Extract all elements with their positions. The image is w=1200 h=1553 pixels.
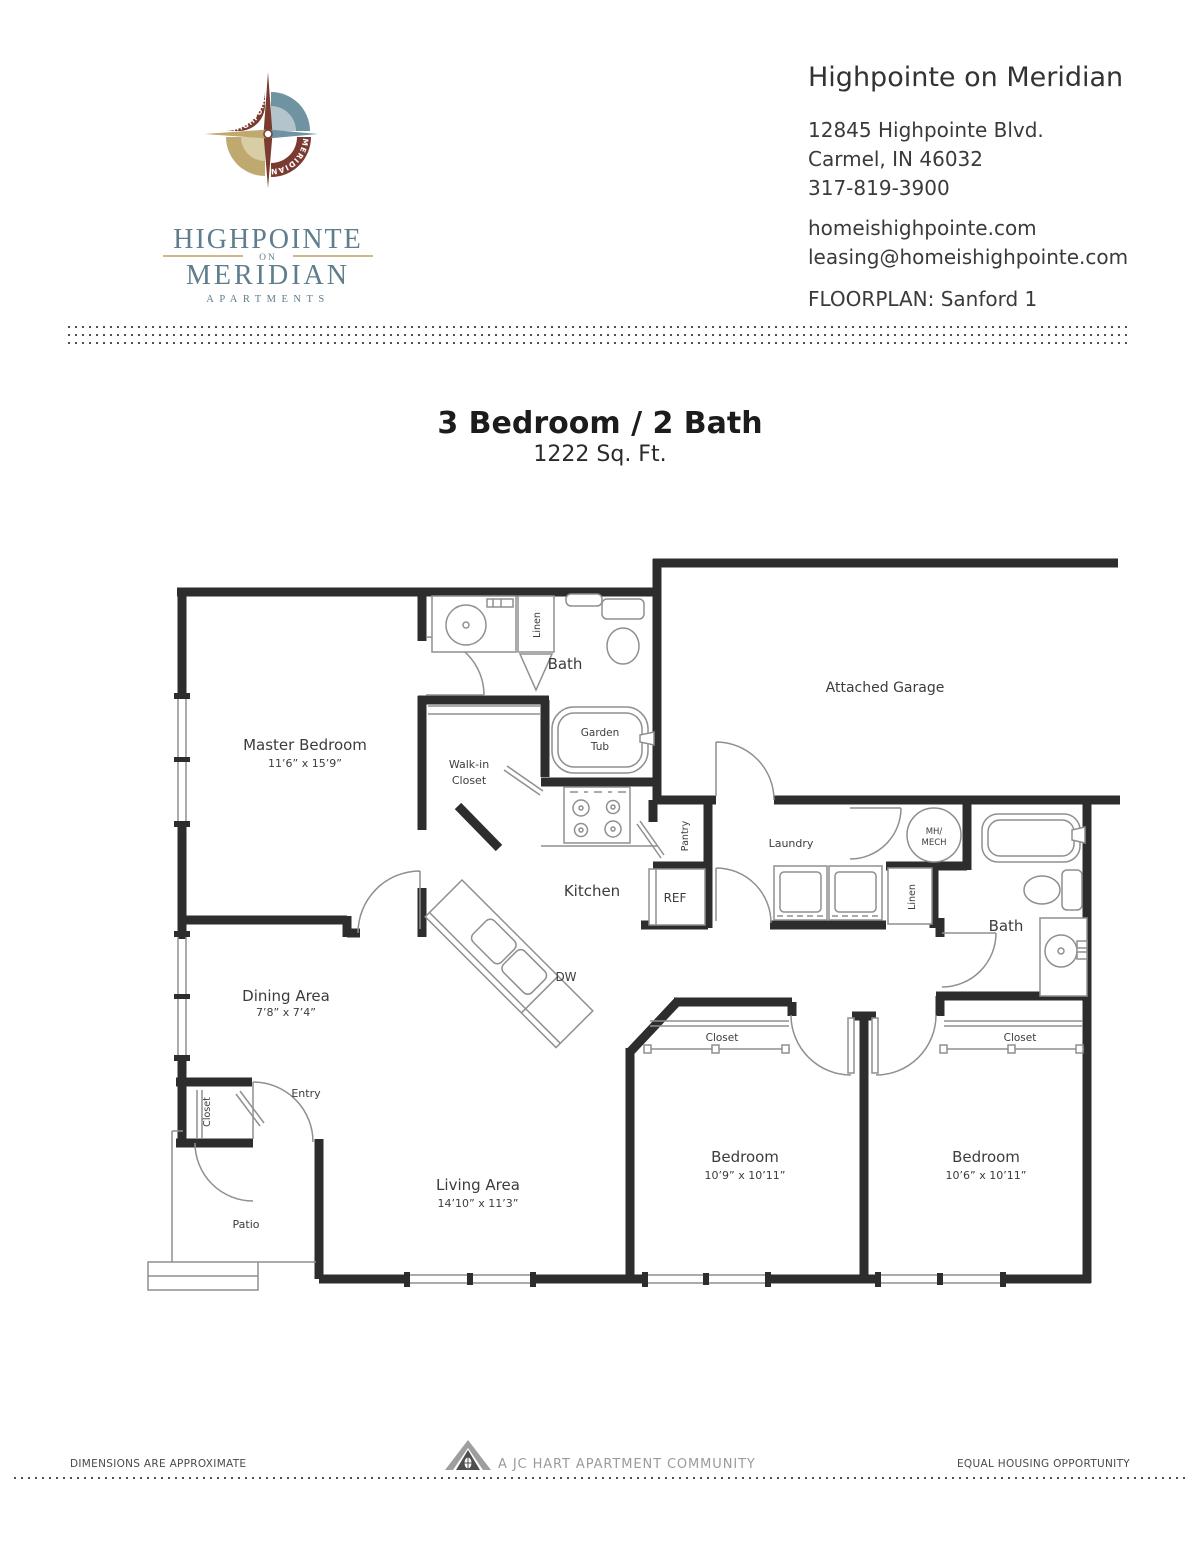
label-laundry: Laundry xyxy=(769,837,814,850)
page-subtitle-sqft: 1222 Sq. Ft. xyxy=(0,442,1200,467)
label-bath-top: Bath xyxy=(548,655,583,673)
logo-line-highpointe: HIGHPOINTE xyxy=(173,224,363,255)
compass-text-top: HIGHPOINTE xyxy=(155,60,267,133)
hall-bath-fixtures xyxy=(982,814,1087,996)
label-linen-top: Linen xyxy=(532,612,543,638)
label-pantry: Pantry xyxy=(680,820,691,851)
label-garden-tub-2: Tub xyxy=(590,741,609,753)
footer-equal-housing: EQUAL HOUSING OPPORTUNITY xyxy=(957,1458,1130,1470)
contact-links: homeishighpointe.com leasing@homeishighp… xyxy=(808,214,1128,272)
label-living-area-dims: 14’10” x 11’3” xyxy=(438,1197,519,1210)
label-walk-in-1: Walk-in xyxy=(449,758,489,771)
jchart-house-icon xyxy=(444,1438,492,1472)
label-dining-area: Dining Area xyxy=(242,987,330,1005)
address-line2: Carmel, IN 46032 xyxy=(808,145,1044,174)
phone-number: 317-819-3900 xyxy=(808,174,1044,203)
label-kitchen: Kitchen xyxy=(564,882,620,900)
floor-plan: Bath Linen Garden Tub Master Bedroom 11’… xyxy=(0,520,1200,1320)
label-entry: Entry xyxy=(291,1087,321,1100)
logo-line-apartments: APARTMENTS xyxy=(206,294,329,305)
logo-wordmark: HIGHPOINTE ON MERIDIAN APARTMENTS xyxy=(163,224,373,305)
label-garden-tub-1: Garden xyxy=(581,727,619,739)
compass-icon: HIGHPOINTE MERIDIAN xyxy=(155,60,318,188)
label-mh-mech-1: MH/ xyxy=(926,827,943,837)
footer-dimensions-note: DIMENSIONS ARE APPROXIMATE xyxy=(70,1458,246,1470)
label-bedroom-left: Bedroom xyxy=(711,1148,779,1166)
label-closet-right: Closet xyxy=(1004,1032,1037,1044)
label-bath-hall: Bath xyxy=(989,917,1024,935)
svg-text:HIGHPOINTE: HIGHPOINTE xyxy=(155,60,267,133)
logo-line-meridian: MERIDIAN xyxy=(186,260,350,291)
label-walk-in-2: Closet xyxy=(452,774,487,787)
footer-divider-dotted xyxy=(14,1477,1186,1479)
company-logo: HIGHPOINTE MERIDIAN HIGHPOINTE ON MERIDI… xyxy=(155,60,385,310)
property-address: 12845 Highpointe Blvd. Carmel, IN 46032 … xyxy=(808,116,1044,203)
footer-community-note: A JC HART APARTMENT COMMUNITY xyxy=(498,1457,756,1472)
label-attached-garage: Attached Garage xyxy=(826,680,945,696)
header-divider-dotted xyxy=(68,326,1132,350)
label-bedroom-right: Bedroom xyxy=(952,1148,1020,1166)
email-link[interactable]: leasing@homeishighpointe.com xyxy=(808,243,1128,272)
patio-outline xyxy=(148,1131,316,1290)
kitchen-fixtures xyxy=(425,787,705,1048)
page-title: 3 Bedroom / 2 Bath xyxy=(0,406,1200,441)
website-link[interactable]: homeishighpointe.com xyxy=(808,214,1128,243)
floorplan-name: FLOORPLAN: Sanford 1 xyxy=(808,287,1037,311)
label-master-bedroom-dims: 11’6” x 15’9” xyxy=(268,757,342,770)
label-mh-mech-2: MECH xyxy=(921,838,946,848)
label-dw: DW xyxy=(555,970,576,984)
label-bedroom-left-dims: 10’9” x 10’11” xyxy=(705,1169,786,1182)
label-entry-closet: Closet xyxy=(202,1097,213,1127)
label-bedroom-right-dims: 10’6” x 10’11” xyxy=(946,1169,1027,1182)
label-dining-area-dims: 7’8” x 7’4” xyxy=(256,1006,316,1019)
address-line1: 12845 Highpointe Blvd. xyxy=(808,116,1044,145)
property-name: Highpointe on Meridian xyxy=(808,62,1123,93)
label-living-area: Living Area xyxy=(436,1176,520,1194)
label-patio: Patio xyxy=(233,1218,260,1231)
label-ref: REF xyxy=(664,891,687,905)
label-linen-hall: Linen xyxy=(907,884,918,910)
label-master-bedroom: Master Bedroom xyxy=(243,736,367,754)
label-closet-left: Closet xyxy=(706,1032,739,1044)
